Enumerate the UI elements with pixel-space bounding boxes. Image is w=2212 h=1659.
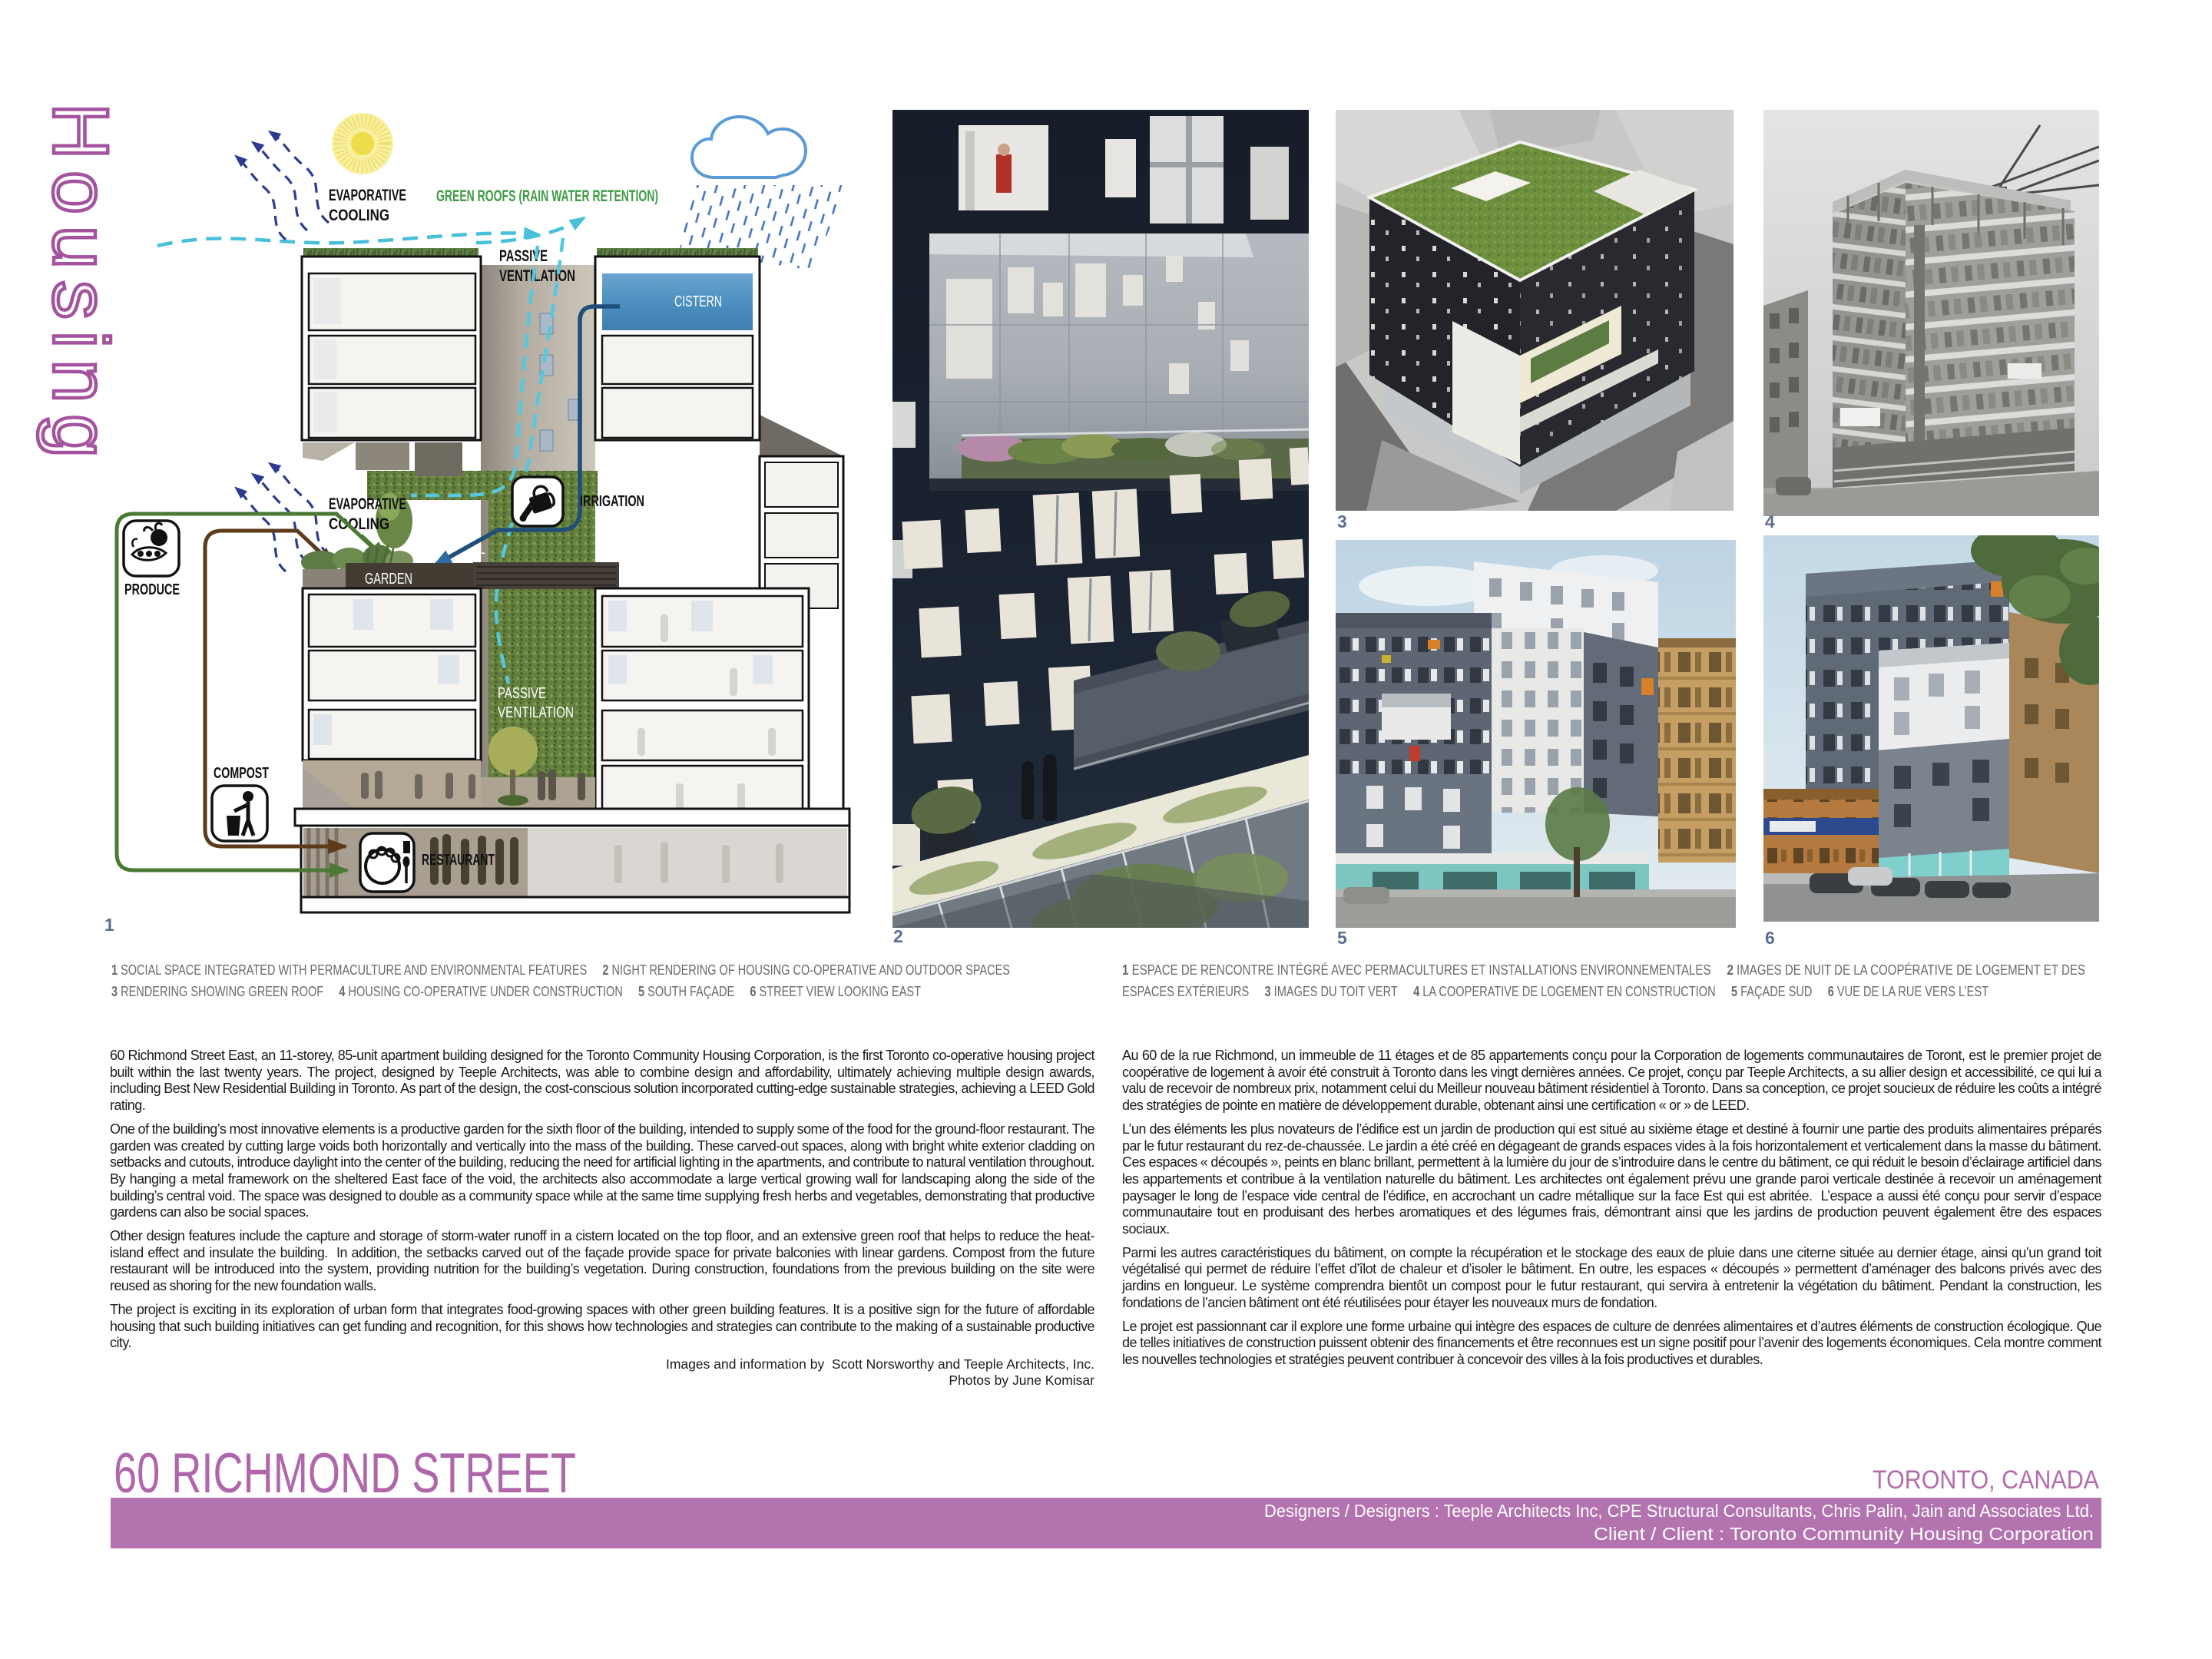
svg-text:Client / Client : Toronto Comm: Client / Client : Toronto Community Hous… (1594, 1524, 2094, 1544)
svg-text:COMPOST: COMPOST (214, 765, 269, 782)
svg-text:1 ESPACE DE RENCONTRE INTÉGRÉ: 1 ESPACE DE RENCONTRE INTÉGRÉ AVEC PERMA… (1122, 962, 2085, 978)
svg-text:RESTAURANT: RESTAURANT (422, 852, 495, 869)
svg-text:PASSIVE: PASSIVE (499, 247, 548, 265)
svg-text:1: 1 (104, 915, 114, 935)
svg-text:GARDEN: GARDEN (365, 571, 412, 588)
svg-text:COOLING: COOLING (329, 207, 389, 224)
svg-text:TORONTO, CANADA: TORONTO, CANADA (1873, 1465, 2099, 1495)
svg-text:PRODUCE: PRODUCE (124, 581, 180, 598)
svg-text:3 RENDERING SHOWING GREEN ROOF: 3 RENDERING SHOWING GREEN ROOF 4 HOUSING… (111, 983, 921, 999)
svg-text:VENTILATION: VENTILATION (498, 704, 574, 721)
svg-text:EVAPORATIVE: EVAPORATIVE (329, 187, 406, 204)
svg-text:PASSIVE: PASSIVE (498, 685, 546, 702)
svg-text:Designers / Designers : Teeple: Designers / Designers : Teeple Architect… (1264, 1501, 2094, 1521)
svg-text:CISTERN: CISTERN (674, 293, 722, 310)
svg-text:EVAPORATIVE: EVAPORATIVE (329, 495, 406, 513)
svg-text:GREEN ROOFS (RAIN WATER RETENT: GREEN ROOFS (RAIN WATER RETENTION) (436, 187, 658, 205)
svg-text:60 RICHMOND STREET: 60 RICHMOND STREET (114, 1442, 576, 1505)
svg-text:VENTILATION: VENTILATION (499, 267, 575, 285)
svg-text:IRRIGATION: IRRIGATION (580, 493, 644, 510)
svg-text:1 SOCIAL SPACE INTEGRATED WITH: 1 SOCIAL SPACE INTEGRATED WITH PERMACULT… (111, 962, 1010, 978)
svg-text:COOLING: COOLING (329, 515, 389, 533)
svg-text:ESPACES EXTÉRIEURS 3 IMAGE: ESPACES EXTÉRIEURS 3 IMAGES DU TOIT VERT… (1122, 983, 1988, 999)
